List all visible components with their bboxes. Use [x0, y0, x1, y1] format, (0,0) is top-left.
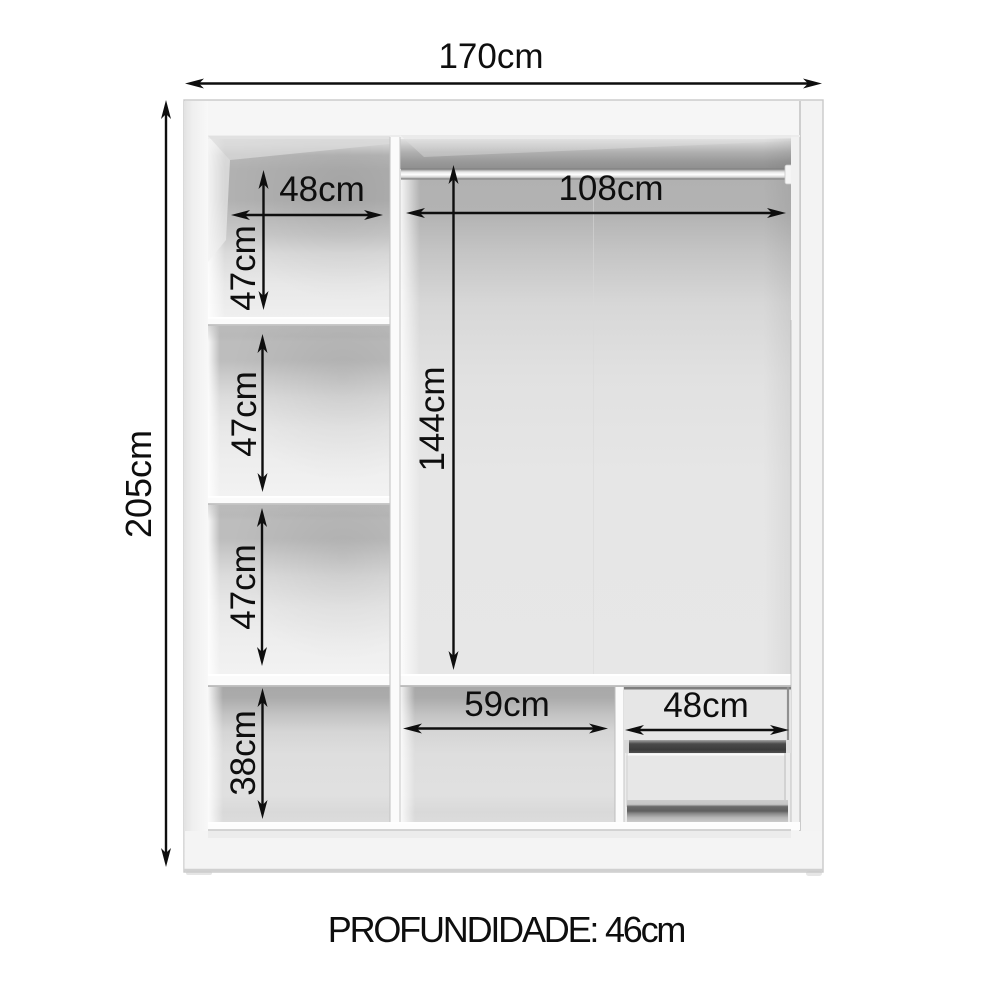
svg-text:170cm: 170cm: [438, 37, 543, 76]
svg-text:38cm: 38cm: [224, 710, 263, 796]
svg-text:47cm: 47cm: [225, 371, 264, 457]
svg-text:144cm: 144cm: [413, 366, 452, 471]
svg-text:PROFUNDIDADE: 46cm: PROFUNDIDADE: 46cm: [328, 909, 685, 950]
svg-text:48cm: 48cm: [279, 170, 365, 209]
svg-text:59cm: 59cm: [464, 685, 550, 724]
svg-text:47cm: 47cm: [224, 544, 263, 630]
svg-text:205cm: 205cm: [118, 430, 159, 538]
svg-text:47cm: 47cm: [224, 225, 263, 311]
svg-text:48cm: 48cm: [663, 686, 749, 725]
svg-text:108cm: 108cm: [558, 169, 663, 208]
